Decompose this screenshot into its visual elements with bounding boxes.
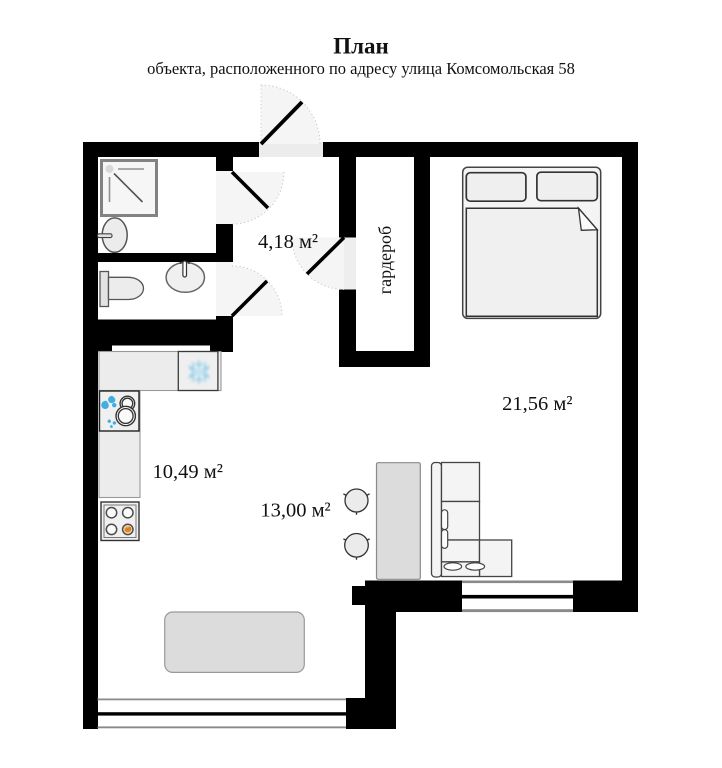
svg-text:21,56 м²: 21,56 м² (502, 393, 572, 415)
svg-text:4,18 м²: 4,18 м² (258, 231, 318, 253)
svg-text:13,00 м²: 13,00 м² (260, 499, 330, 521)
svg-text:План: План (333, 34, 389, 59)
svg-text:гардероб: гардероб (375, 226, 395, 294)
svg-text:объекта, расположенного по адр: объекта, расположенного по адресу улица … (147, 59, 575, 78)
svg-text:10,49 м²: 10,49 м² (153, 461, 223, 483)
